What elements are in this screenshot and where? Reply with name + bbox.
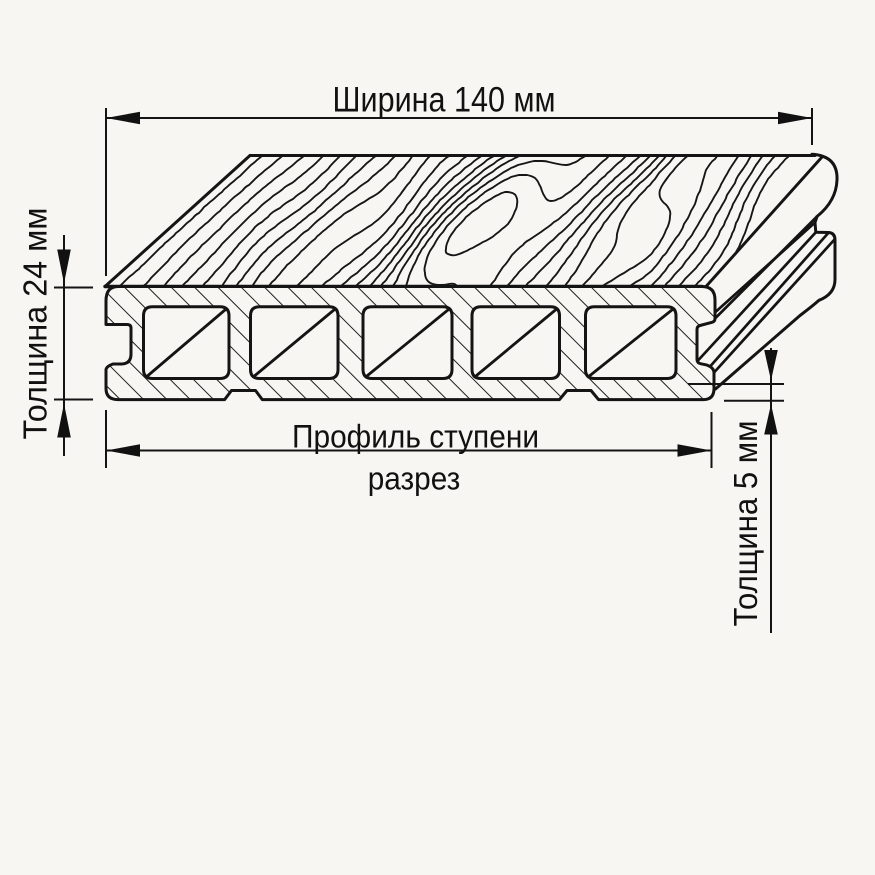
svg-text:Толщина 24 мм: Толщина 24 мм: [17, 208, 54, 440]
svg-text:Ширина 140 мм: Ширина 140 мм: [333, 81, 556, 120]
svg-text:разрез: разрез: [368, 461, 461, 497]
svg-text:Профиль ступени: Профиль ступени: [292, 419, 539, 455]
svg-text:Толщина 5 мм: Толщина 5 мм: [727, 421, 764, 627]
